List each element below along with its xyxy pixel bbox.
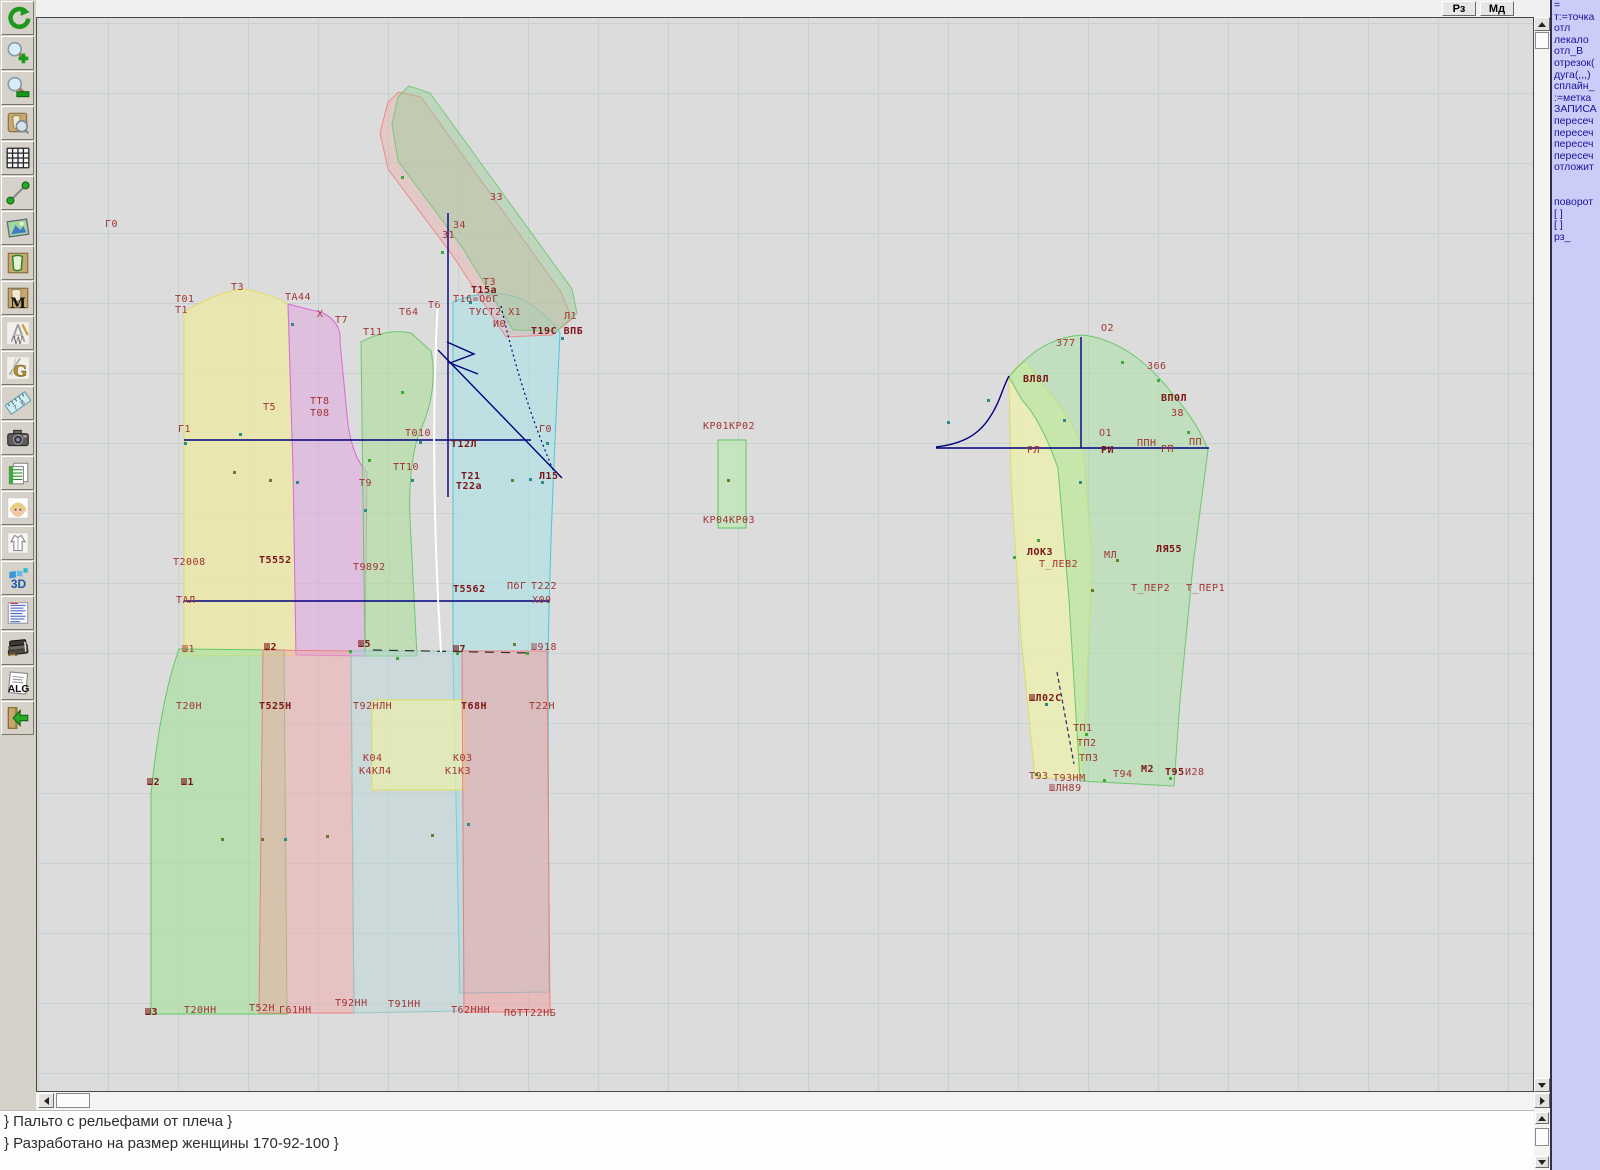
point-label[interactable]: Т22Н: [529, 701, 555, 712]
point-marker[interactable]: [296, 481, 299, 484]
point-label[interactable]: ТА44: [285, 292, 311, 303]
point-marker[interactable]: [291, 323, 294, 326]
zoom-out-icon: [5, 75, 31, 101]
command-item[interactable]: рз_: [1552, 232, 1600, 244]
point-marker[interactable]: [526, 652, 529, 655]
three-d-icon: 3D: [5, 565, 31, 591]
point-label[interactable]: Х00: [532, 595, 552, 606]
point-label[interactable]: РИ: [1101, 445, 1114, 456]
point-marker[interactable]: [401, 391, 404, 394]
point-label[interactable]: И28: [1185, 767, 1205, 778]
point-label[interactable]: Т22а: [456, 481, 482, 492]
point-label[interactable]: ШЛ02С: [1029, 693, 1062, 704]
point-label[interactable]: К1КЗ: [445, 766, 471, 777]
alg-icon: ALG: [5, 670, 31, 696]
point-label[interactable]: ВП0Л: [1161, 393, 1187, 404]
scroll-up-button[interactable]: [1534, 17, 1550, 31]
point-marker[interactable]: [364, 509, 367, 512]
horizontal-scroll-thumb[interactable]: [56, 1093, 90, 1108]
vertical-scroll-thumb[interactable]: [1535, 32, 1549, 49]
image-icon: [5, 215, 31, 241]
point-marker[interactable]: [1091, 589, 1094, 592]
point-label[interactable]: Л15: [539, 471, 559, 482]
point-marker[interactable]: [561, 337, 564, 340]
point-label[interactable]: ЛОК3: [1027, 547, 1053, 558]
point-label[interactable]: Г0: [539, 424, 552, 435]
point-marker[interactable]: [727, 479, 730, 482]
svg-text:M: M: [10, 296, 26, 311]
command-item[interactable]: пересеч: [1552, 151, 1600, 163]
status-scroll-down-button[interactable]: [1535, 1156, 1549, 1168]
point-marker[interactable]: [396, 657, 399, 660]
point-label[interactable]: Т9892: [353, 562, 386, 573]
toolbar-button-camera[interactable]: [1, 421, 34, 455]
point-marker[interactable]: [411, 479, 414, 482]
letter-g-icon: G: [5, 355, 31, 381]
toolbar-button-view-piece[interactable]: [1, 106, 34, 140]
point-label[interactable]: О2: [1101, 323, 1114, 334]
point-label[interactable]: ППН: [1137, 438, 1157, 449]
point-marker[interactable]: [511, 479, 514, 482]
toolbar-button-three-d[interactable]: 3D: [1, 561, 34, 595]
down-arrow-icon: [1538, 1160, 1546, 1165]
point-label[interactable]: Т525Н: [259, 701, 292, 712]
point-marker[interactable]: [1013, 556, 1016, 559]
point-label[interactable]: Л1: [564, 311, 577, 322]
point-label[interactable]: ЛЯ55: [1156, 544, 1182, 555]
command-panel: =т:=точкаотллекалоотл_Вотрезок(дуга(,,,)…: [1550, 0, 1600, 1170]
command-list: =т:=точкаотллекалоотл_Вотрезок(дуга(,,,)…: [1552, 0, 1600, 243]
command-item[interactable]: :=метка: [1552, 93, 1600, 105]
point-label[interactable]: К4КЛ4: [359, 766, 392, 777]
pattern-outline-icon: [5, 250, 31, 276]
point-label[interactable]: МЛ: [1104, 550, 1117, 561]
point-label[interactable]: Т20Н: [176, 701, 202, 712]
point-label[interactable]: Ш5: [358, 639, 371, 650]
toolbar-button-zoom-in[interactable]: [1, 36, 34, 70]
point-label[interactable]: РЛ: [1027, 445, 1040, 456]
point-label[interactable]: Т08: [310, 408, 330, 419]
command-item[interactable]: =: [1552, 0, 1600, 12]
point-label[interactable]: Т9: [359, 478, 372, 489]
vertical-scrollbar[interactable]: [1534, 17, 1550, 1092]
point-label[interactable]: Ш1: [182, 644, 195, 655]
command-item[interactable]: поворот: [1552, 197, 1600, 209]
point-label[interactable]: К03: [453, 753, 473, 764]
refresh-icon: [5, 5, 31, 31]
garment-icon: [5, 530, 31, 556]
point-label[interactable]: КР03: [729, 515, 755, 526]
point-label[interactable]: Ш1: [181, 777, 194, 788]
point-label[interactable]: Т222: [531, 581, 557, 592]
command-item[interactable]: отложит: [1552, 162, 1600, 174]
horizontal-scrollbar[interactable]: [36, 1092, 1550, 1110]
toolbar-button-letter-g[interactable]: G: [1, 351, 34, 385]
camera-icon: [5, 425, 31, 451]
command-item[interactable]: ЗАПИСА: [1552, 104, 1600, 116]
toolbar-button-garment[interactable]: [1, 526, 34, 560]
point-label[interactable]: Т5: [263, 402, 276, 413]
point-label[interactable]: ПП: [1189, 437, 1202, 448]
ruler-icon: 78: [5, 390, 31, 416]
point-label[interactable]: Т91НН: [388, 999, 421, 1010]
point-label[interactable]: Т64: [399, 307, 419, 318]
right-arrow-icon: [1540, 1097, 1545, 1105]
left-arrow-icon: [44, 1097, 49, 1105]
point-marker[interactable]: [441, 251, 444, 254]
point-label[interactable]: Т94: [1113, 769, 1133, 780]
toolbar-button-pattern-outline[interactable]: [1, 246, 34, 280]
view-piece-icon: [5, 110, 31, 136]
command-item[interactable]: пересеч: [1552, 139, 1600, 151]
rz-button[interactable]: Рз: [1442, 1, 1476, 16]
toolbar-button-image[interactable]: [1, 211, 34, 245]
down-arrow-icon: [1538, 1083, 1546, 1088]
scroll-down-button[interactable]: [1534, 1078, 1550, 1092]
point-marker[interactable]: [1121, 361, 1124, 364]
point-label[interactable]: РП: [1161, 444, 1174, 455]
point-label[interactable]: Т92НЛН: [353, 701, 392, 712]
drafting-icon: W: [5, 320, 31, 346]
point-label[interactable]: Т01: [175, 294, 195, 305]
measure-segment-icon: [5, 180, 31, 206]
point-marker[interactable]: [513, 643, 516, 646]
point-label[interactable]: Х: [317, 309, 324, 320]
point-marker[interactable]: [368, 459, 371, 462]
point-label[interactable]: ТП1: [1073, 723, 1093, 734]
point-label[interactable]: ПбТТ22НБ: [504, 1008, 556, 1019]
command-item[interactable]: [ ]: [1552, 209, 1600, 221]
point-label[interactable]: Ш2: [264, 642, 277, 653]
toolbar: M W G 78 3D ALG: [0, 0, 37, 1110]
point-marker[interactable]: [947, 421, 950, 424]
point-label[interactable]: ТАЛ: [176, 595, 196, 606]
point-marker[interactable]: [401, 176, 404, 179]
point-label[interactable]: И0: [493, 319, 506, 330]
grid-icon: [5, 145, 31, 171]
point-marker[interactable]: [1157, 379, 1160, 382]
pattern-m-icon: M: [5, 285, 31, 311]
point-label[interactable]: Т_ПЕР2: [1131, 583, 1170, 594]
point-label[interactable]: ТП3: [1079, 753, 1099, 764]
point-label[interactable]: КР02: [729, 421, 755, 432]
point-marker[interactable]: [419, 441, 422, 444]
point-marker[interactable]: [1187, 431, 1190, 434]
command-item[interactable]: лекало: [1552, 35, 1600, 47]
point-marker[interactable]: [467, 823, 470, 826]
point-marker[interactable]: [1103, 779, 1106, 782]
point-label[interactable]: ШЛН89: [1049, 783, 1082, 794]
status-bar: } Пальто с рельефами от плеча } } Разраб…: [0, 1110, 1534, 1170]
exit-icon: [5, 705, 31, 731]
point-label[interactable]: ПбГ: [507, 581, 527, 592]
toolbar-button-list-document[interactable]: [1, 596, 34, 630]
point-label[interactable]: Т5552: [259, 555, 292, 566]
point-label[interactable]: Т12Л: [451, 439, 477, 450]
point-label[interactable]: Т3: [231, 282, 244, 293]
toolbar-button-exit[interactable]: [1, 701, 34, 735]
books-icon: [5, 635, 31, 661]
toolbar-button-refresh[interactable]: [1, 1, 34, 35]
toolbar-button-books[interactable]: [1, 631, 34, 665]
point-label[interactable]: Т11: [363, 327, 383, 338]
point-marker[interactable]: [529, 478, 532, 481]
command-item[interactable]: отл: [1552, 23, 1600, 35]
point-label[interactable]: М2: [1141, 764, 1154, 775]
command-item[interactable]: дуга(,,,): [1552, 70, 1600, 82]
command-item[interactable]: отрезок(: [1552, 58, 1600, 70]
scroll-left-button[interactable]: [38, 1093, 54, 1108]
point-label[interactable]: Т5562: [453, 584, 486, 595]
point-marker[interactable]: [269, 479, 272, 482]
point-label[interactable]: Т_ПЕР1: [1186, 583, 1225, 594]
point-marker[interactable]: [546, 442, 549, 445]
point-label[interactable]: Ш2: [147, 777, 160, 788]
status-scroll-up-button[interactable]: [1535, 1112, 1549, 1124]
point-marker[interactable]: [1037, 539, 1040, 542]
point-label[interactable]: З1: [442, 230, 455, 241]
up-arrow-icon: [1538, 22, 1546, 27]
spreadsheet-icon: [5, 460, 31, 486]
point-label[interactable]: Т16=ОбГ: [453, 294, 499, 305]
toolbar-button-pattern-m[interactable]: M: [1, 281, 34, 315]
point-marker[interactable]: [184, 442, 187, 445]
point-label[interactable]: Т2008: [173, 557, 206, 568]
svg-text:ALG: ALG: [7, 684, 29, 695]
point-label[interactable]: Т93: [1029, 771, 1049, 782]
point-label[interactable]: З3: [490, 192, 503, 203]
point-label[interactable]: Ш3: [145, 1007, 158, 1018]
point-marker[interactable]: [239, 433, 242, 436]
point-label[interactable]: ТТ8: [310, 396, 330, 407]
md-button[interactable]: Мд: [1480, 1, 1514, 16]
command-item[interactable]: т:=точка: [1552, 12, 1600, 24]
point-marker[interactable]: [1079, 481, 1082, 484]
point-marker[interactable]: [284, 838, 287, 841]
command-item[interactable]: [ ]: [1552, 220, 1600, 232]
status-line-2: } Разработано на размер женщины 170-92-1…: [0, 1133, 1534, 1155]
point-label[interactable]: Т52Н: [249, 1003, 275, 1014]
toolbar-button-measure-segment[interactable]: [1, 176, 34, 210]
canvas-labels: Г0Т3Т01Т1ТА44ХТ7Т11З3З4З1Т3Т15аТ16=ОбГТ6…: [37, 18, 1533, 1091]
point-label[interactable]: Т19С ВПБ: [531, 326, 583, 337]
point-label[interactable]: Г61НН: [279, 1005, 312, 1016]
command-item: [1552, 174, 1600, 186]
point-label[interactable]: К04: [363, 753, 383, 764]
portrait-icon: [5, 495, 31, 521]
point-label[interactable]: ВЛ8Л: [1023, 374, 1049, 385]
point-label[interactable]: Т62ННН: [451, 1005, 490, 1016]
point-label[interactable]: Т6: [428, 300, 441, 311]
point-label[interactable]: Г1: [178, 424, 191, 435]
point-label[interactable]: З66: [1147, 361, 1167, 372]
scroll-right-button[interactable]: [1534, 1093, 1550, 1108]
point-marker[interactable]: [431, 834, 434, 837]
status-line-1: } Пальто с рельефами от плеча }: [0, 1111, 1534, 1133]
list-document-icon: [5, 600, 31, 626]
point-label[interactable]: ТТ10: [393, 462, 419, 473]
point-marker[interactable]: [221, 838, 224, 841]
point-label[interactable]: Ш7: [453, 644, 466, 655]
drawing-canvas[interactable]: Г0Т3Т01Т1ТА44ХТ7Т11З3З4З1Т3Т15аТ16=ОбГТ6…: [36, 17, 1534, 1092]
status-scroll-thumb[interactable]: [1535, 1128, 1549, 1146]
point-marker[interactable]: [261, 838, 264, 841]
point-marker[interactable]: [1063, 419, 1066, 422]
point-label[interactable]: Т92НН: [335, 998, 368, 1009]
svg-text:W: W: [12, 336, 22, 346]
svg-text:G: G: [13, 362, 27, 381]
point-label[interactable]: Т68Н: [461, 701, 487, 712]
point-label[interactable]: Т_ЛЕВ2: [1039, 559, 1078, 570]
point-label[interactable]: Г0: [105, 219, 118, 230]
point-label[interactable]: ТП2: [1077, 738, 1097, 749]
command-item[interactable]: пересеч: [1552, 116, 1600, 128]
point-label[interactable]: Т7: [335, 315, 348, 326]
svg-text:3D: 3D: [10, 577, 26, 591]
status-scrollbar[interactable]: [1534, 1110, 1550, 1170]
top-strip: [36, 0, 1550, 17]
point-label[interactable]: З77: [1056, 338, 1076, 349]
point-marker[interactable]: [349, 650, 352, 653]
zoom-in-icon: [5, 40, 31, 66]
command-item[interactable]: сплайн_: [1552, 81, 1600, 93]
toolbar-button-spreadsheet[interactable]: [1, 456, 34, 490]
toolbar-button-alg[interactable]: ALG: [1, 666, 34, 700]
toolbar-button-ruler[interactable]: 78: [1, 386, 34, 420]
point-label[interactable]: Т95: [1165, 767, 1185, 778]
point-label[interactable]: Ш918: [531, 642, 557, 653]
command-item: [1552, 186, 1600, 198]
toolbar-button-zoom-out[interactable]: [1, 71, 34, 105]
point-label[interactable]: 38: [1171, 408, 1184, 419]
toolbar-button-portrait[interactable]: [1, 491, 34, 525]
toolbar-button-drafting[interactable]: W: [1, 316, 34, 350]
toolbar-button-grid[interactable]: [1, 141, 34, 175]
point-label[interactable]: КР04: [703, 515, 729, 526]
point-label[interactable]: Т20НН: [184, 1005, 217, 1016]
point-label[interactable]: Т1: [175, 305, 188, 316]
point-label[interactable]: Т010: [405, 428, 431, 439]
point-marker[interactable]: [233, 471, 236, 474]
point-label[interactable]: КР01: [703, 421, 729, 432]
point-label[interactable]: О1: [1099, 428, 1112, 439]
command-item[interactable]: отл_В: [1552, 46, 1600, 58]
point-marker[interactable]: [987, 399, 990, 402]
point-marker[interactable]: [326, 835, 329, 838]
command-item[interactable]: пересеч: [1552, 128, 1600, 140]
up-arrow-icon: [1538, 1116, 1546, 1121]
point-label[interactable]: ТУСТ2 Х1: [469, 307, 521, 318]
